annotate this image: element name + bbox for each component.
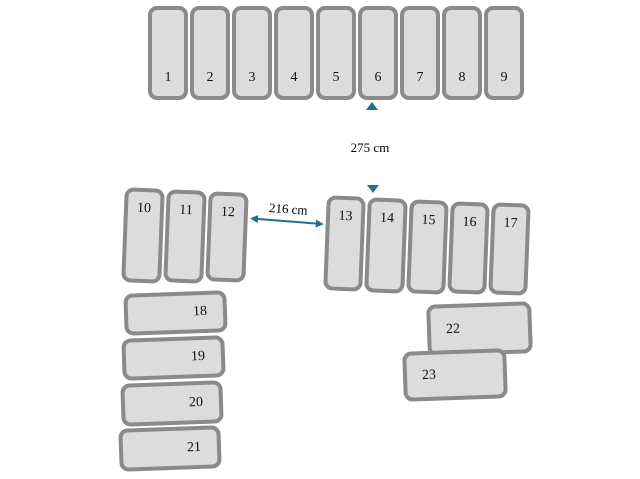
spot-10: 10 (121, 187, 165, 283)
spot-6: 6 (358, 6, 398, 100)
spot-4: 4 (274, 6, 314, 100)
spot-label: 15 (421, 214, 436, 229)
spot-label: 2 (207, 71, 214, 85)
spot-label: 10 (137, 202, 152, 217)
spot-12: 12 (205, 191, 248, 282)
spot-19: 19 (121, 335, 225, 381)
spot-label: 21 (187, 440, 201, 454)
spot-7: 7 (400, 6, 440, 100)
spot-20: 20 (120, 380, 223, 427)
spot-8: 8 (442, 6, 482, 100)
spot-15: 15 (406, 199, 449, 294)
spot-label: 11 (179, 204, 193, 219)
spot-23: 23 (402, 348, 508, 402)
spot-16: 16 (447, 201, 490, 294)
spot-1: 1 (148, 6, 188, 100)
spot-2: 2 (190, 6, 230, 100)
horizontal-distance-label: 216 cm (268, 200, 308, 219)
spot-label: 17 (503, 217, 518, 232)
spot-9: 9 (484, 6, 524, 100)
up-arrowhead-icon (366, 102, 378, 110)
spot-label: 7 (417, 71, 424, 85)
spot-14: 14 (364, 197, 408, 293)
spot-label: 4 (291, 71, 298, 85)
spot-label: 23 (422, 369, 436, 383)
spot-label: 19 (191, 350, 205, 364)
spot-11: 11 (163, 189, 207, 283)
spot-21: 21 (118, 425, 221, 472)
down-arrowhead-icon (367, 185, 379, 193)
spot-label: 20 (189, 395, 203, 409)
diagram-canvas: 1 2 3 4 5 6 7 8 9 275 cm 10 11 12 216 cm… (0, 0, 640, 479)
double-headed-arrow (258, 218, 316, 225)
spot-label: 16 (462, 216, 477, 231)
spot-label: 6 (375, 71, 382, 85)
spot-18: 18 (123, 290, 227, 336)
vertical-distance-label: 275 cm (344, 140, 396, 156)
spot-label: 12 (221, 206, 236, 221)
spot-3: 3 (232, 6, 272, 100)
spot-label: 5 (333, 71, 340, 85)
spot-label: 9 (501, 71, 508, 85)
spot-label: 1 (165, 71, 172, 85)
spot-17: 17 (488, 202, 531, 295)
spot-label: 18 (193, 305, 207, 319)
spot-label: 8 (459, 71, 466, 85)
spot-label: 14 (380, 212, 395, 227)
spot-13: 13 (323, 195, 366, 291)
spot-label: 3 (249, 71, 256, 85)
spot-label: 13 (338, 210, 353, 225)
spot-label: 22 (446, 323, 460, 337)
spot-5: 5 (316, 6, 356, 100)
